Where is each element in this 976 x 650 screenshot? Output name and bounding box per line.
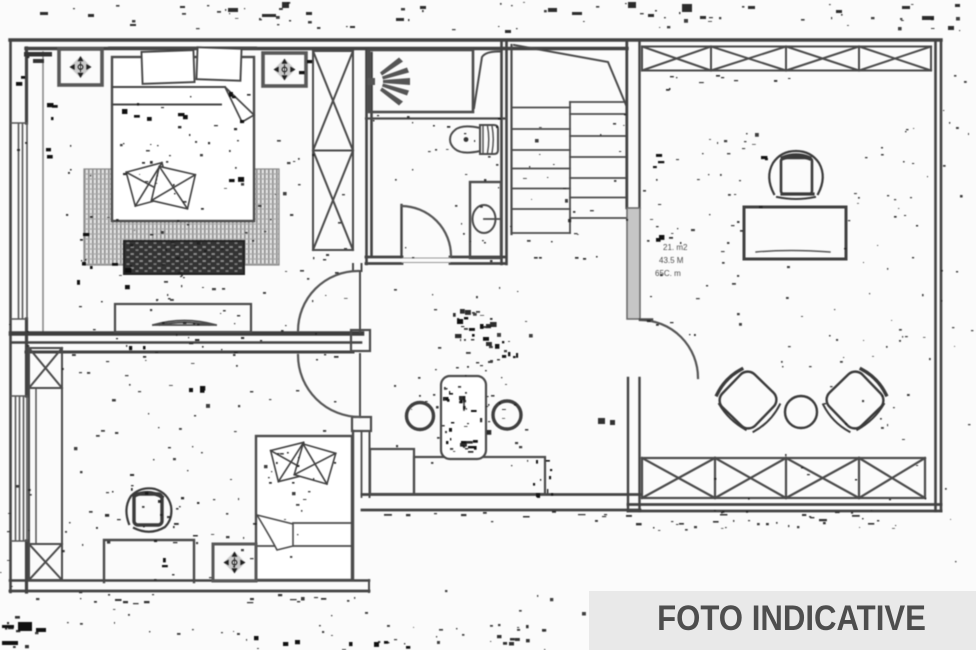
svg-text:65C. m: 65C. m	[655, 269, 681, 278]
svg-text:21. m2: 21. m2	[663, 243, 688, 252]
svg-text:43.5 M: 43.5 M	[659, 256, 684, 265]
